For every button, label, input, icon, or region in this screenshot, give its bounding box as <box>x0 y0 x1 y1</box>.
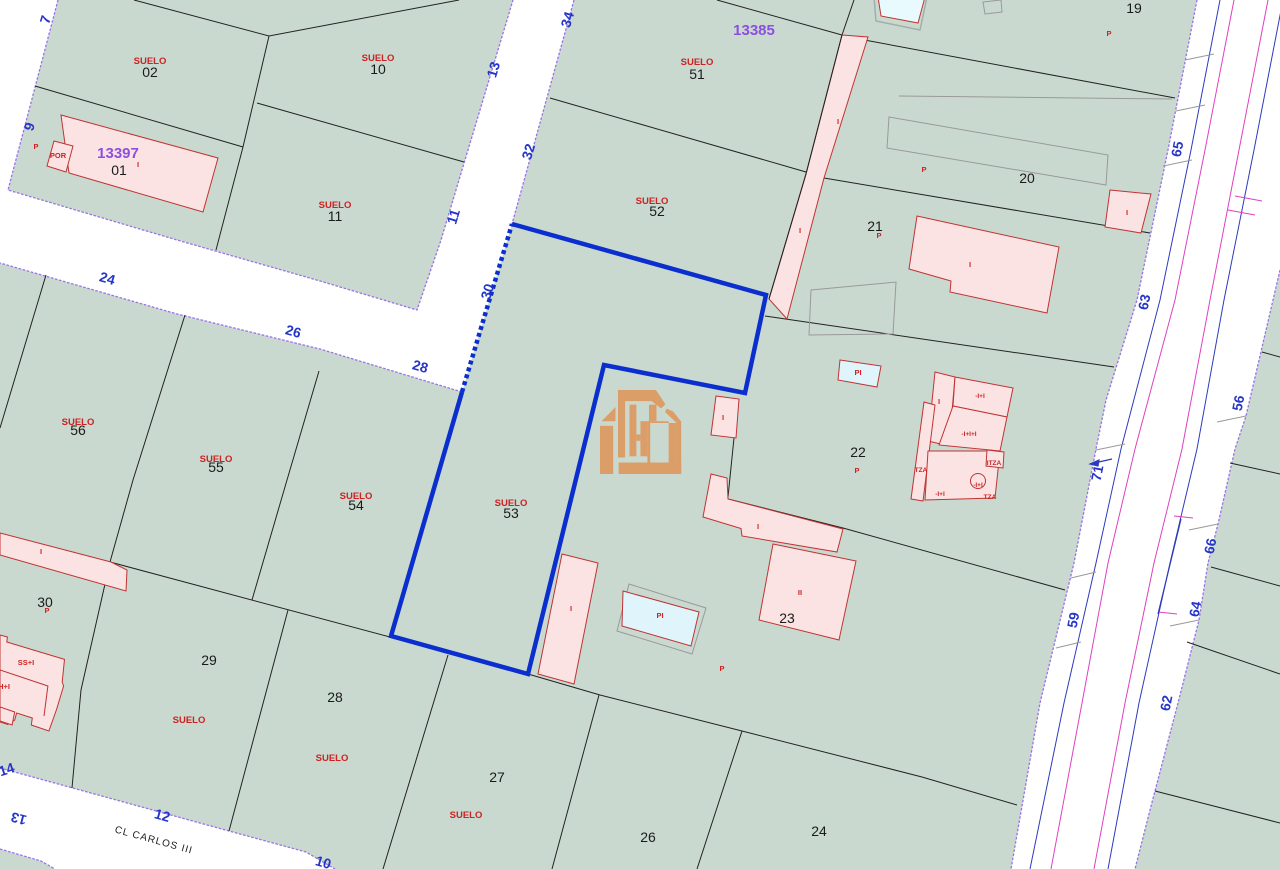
svg-text:11: 11 <box>328 208 343 224</box>
svg-text:P: P <box>719 664 724 673</box>
svg-text:59: 59 <box>1064 611 1083 630</box>
svg-text:SUELO: SUELO <box>316 753 349 764</box>
svg-text:20: 20 <box>1019 170 1035 186</box>
svg-text:PI: PI <box>854 368 861 377</box>
svg-text:I: I <box>137 160 139 169</box>
svg-text:22: 22 <box>850 444 866 460</box>
svg-text:PI: PI <box>656 611 663 620</box>
svg-text:56: 56 <box>70 422 86 438</box>
svg-text:62: 62 <box>1157 694 1176 713</box>
svg-text:SUELO: SUELO <box>173 715 206 726</box>
svg-text:I: I <box>570 604 572 613</box>
svg-text:P: P <box>921 165 926 174</box>
svg-text:65: 65 <box>1168 140 1187 159</box>
svg-text:I: I <box>1126 208 1128 217</box>
svg-text:55: 55 <box>208 459 224 475</box>
svg-text:TZA: TZA <box>915 467 928 474</box>
svg-text:53: 53 <box>503 505 519 521</box>
svg-text:P: P <box>854 466 859 475</box>
svg-text:-I+I: -I+I <box>935 491 945 498</box>
svg-text:63: 63 <box>1135 293 1154 312</box>
svg-text:29: 29 <box>201 652 217 668</box>
svg-text:01: 01 <box>111 162 127 178</box>
svg-text:I: I <box>722 413 724 422</box>
svg-text:I: I <box>799 226 801 235</box>
svg-text:26: 26 <box>640 829 656 845</box>
svg-text:10: 10 <box>370 61 386 77</box>
svg-text:P: P <box>1106 29 1111 38</box>
svg-text:P: P <box>876 231 881 240</box>
svg-text:02: 02 <box>142 64 158 80</box>
svg-text:19: 19 <box>1126 0 1142 16</box>
svg-text:P: P <box>33 142 38 151</box>
svg-text:SS+I: SS+I <box>18 658 34 667</box>
svg-text:P: P <box>44 606 49 615</box>
svg-text:-I+I: -I+I <box>973 482 983 489</box>
svg-text:POR: POR <box>50 151 67 160</box>
svg-text:66: 66 <box>1201 537 1220 556</box>
svg-text:24: 24 <box>811 823 827 839</box>
svg-text:-I+I+I: -I+I+I <box>961 431 976 438</box>
svg-text:TZA: TZA <box>984 494 997 501</box>
svg-text:13385: 13385 <box>733 22 775 39</box>
svg-text:28: 28 <box>327 689 343 705</box>
svg-text:SUELO: SUELO <box>450 810 483 821</box>
svg-text:I: I <box>938 397 940 406</box>
svg-text:II: II <box>798 588 802 597</box>
svg-text:H+I: H+I <box>0 682 10 691</box>
svg-text:23: 23 <box>779 610 795 626</box>
svg-text:ITZA: ITZA <box>987 460 1002 467</box>
svg-text:I: I <box>40 547 42 556</box>
svg-text:56: 56 <box>1229 394 1248 413</box>
svg-text:I: I <box>969 260 971 269</box>
svg-text:51: 51 <box>689 66 705 82</box>
svg-text:54: 54 <box>348 497 364 513</box>
svg-text:52: 52 <box>649 203 665 219</box>
svg-text:27: 27 <box>489 769 505 785</box>
svg-text:71: 71 <box>1088 464 1107 483</box>
svg-text:64: 64 <box>1186 600 1205 619</box>
svg-text:I: I <box>757 522 759 531</box>
svg-text:-I+I: -I+I <box>975 393 985 400</box>
svg-text:13397: 13397 <box>97 145 139 162</box>
svg-text:I: I <box>837 117 839 126</box>
